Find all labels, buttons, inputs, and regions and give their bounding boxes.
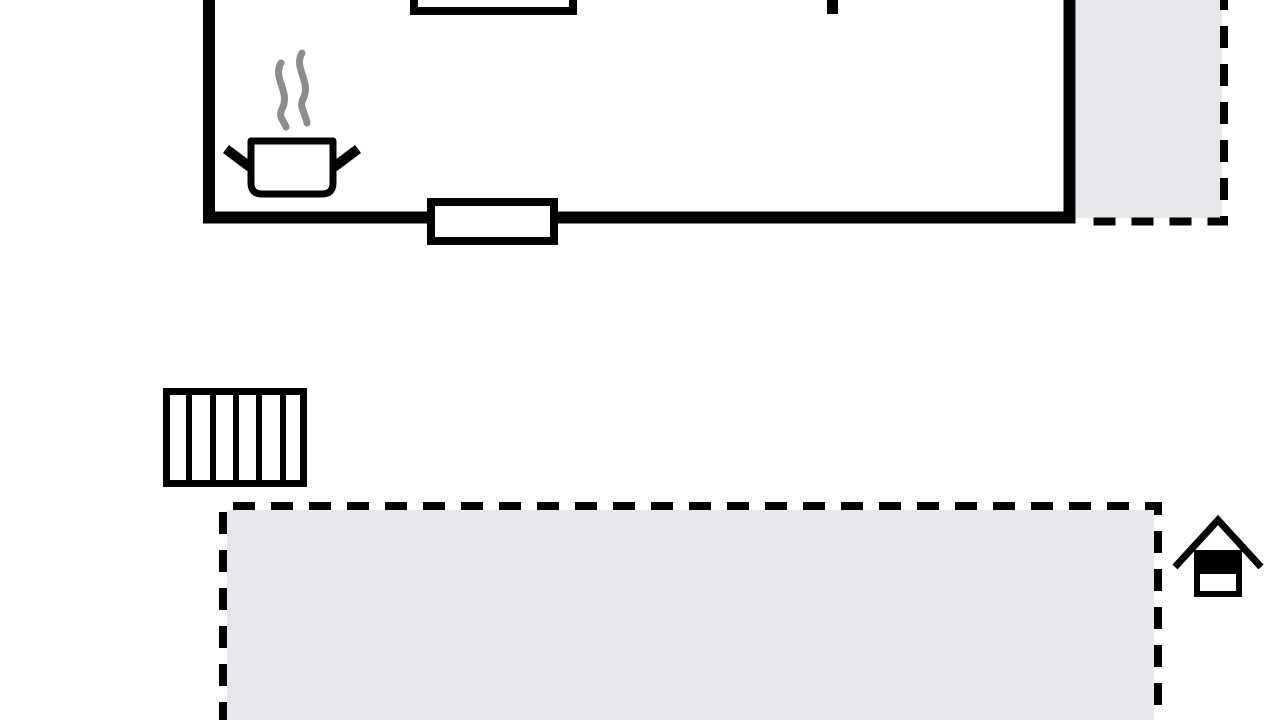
steam-left-icon [279,63,286,127]
terrace-upper-fill [1076,0,1222,218]
floor-plan-drawing [0,0,1280,720]
window-top-icon [414,0,573,11]
pot-handle-right-icon [334,149,358,167]
pot-handle-left-icon [226,149,250,167]
steam-right-icon [300,53,307,123]
interior-wall-stub [827,0,838,14]
kitchen-walls [209,0,1070,218]
house-body-top-fill [1194,550,1242,574]
window-bottom-icon [431,202,554,241]
floor-plan-canvas [0,0,1280,720]
terrace-lower-fill [227,510,1154,720]
cooking-pot-icon [251,141,333,194]
